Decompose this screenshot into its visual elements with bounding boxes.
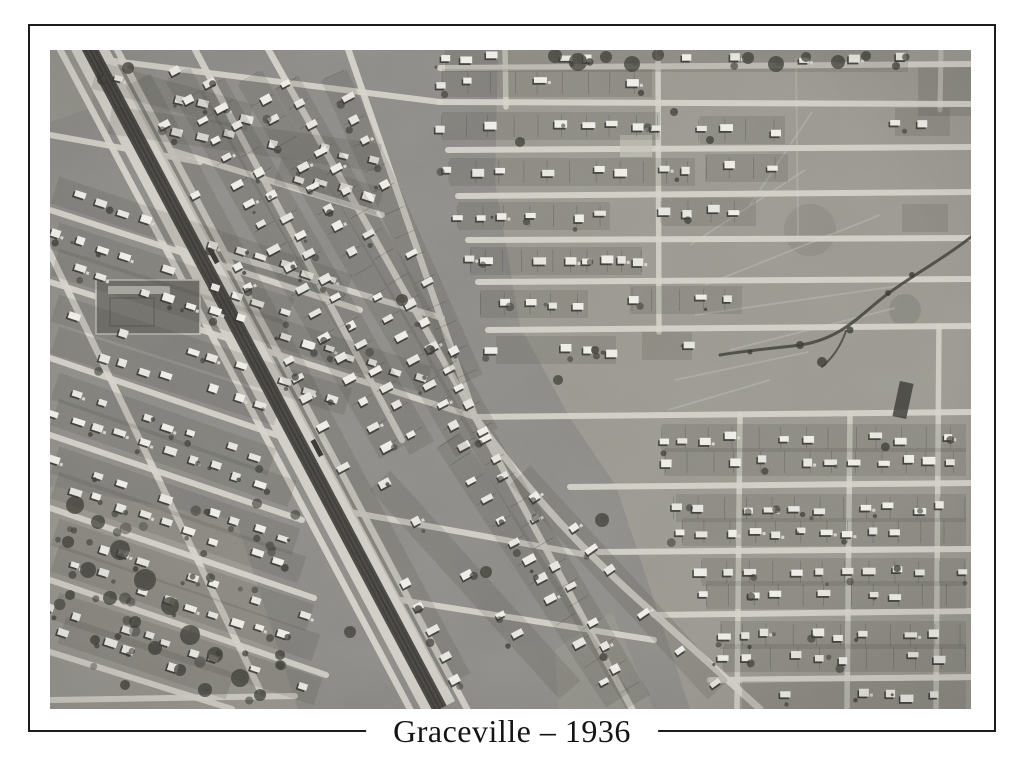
photo-caption: Graceville – 1936: [366, 713, 658, 750]
framed-print: Graceville – 1936: [0, 0, 1024, 762]
aerial-photo-drawing: [50, 50, 971, 709]
aerial-photo: [50, 50, 971, 709]
